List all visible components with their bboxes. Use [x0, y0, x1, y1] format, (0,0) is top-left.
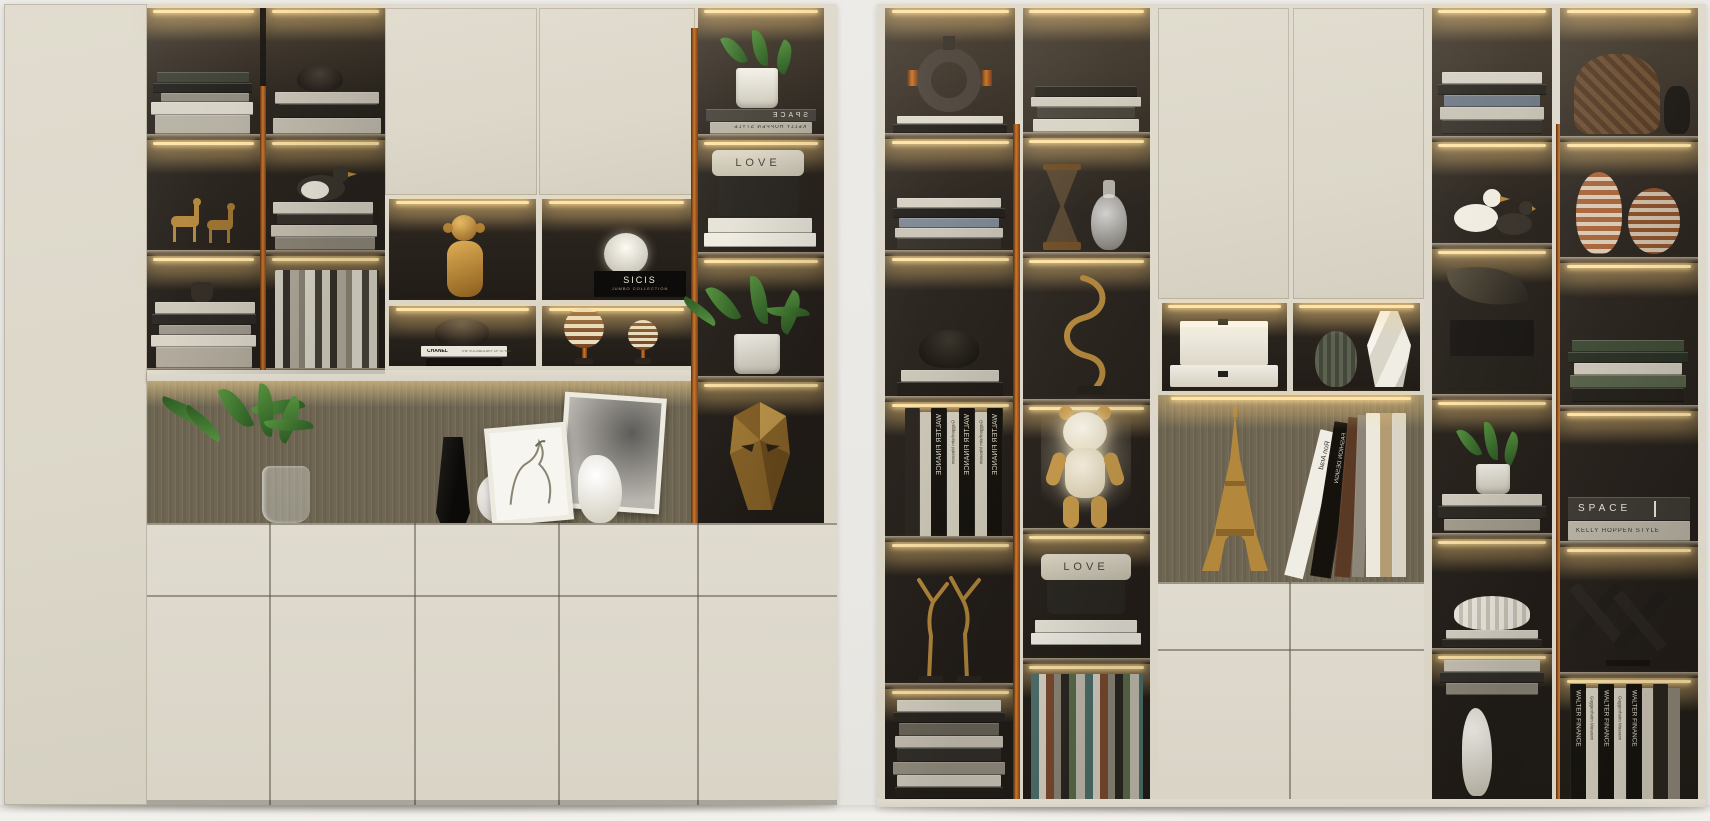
dark-bowl	[435, 318, 489, 346]
striped-gourd-vase	[1628, 188, 1680, 254]
copper-handle	[691, 28, 698, 523]
bird-figurines	[1448, 166, 1536, 242]
walter-finance-books-mirrored: WALTER FINANCE Guggenheim Museum WALTER …	[899, 408, 1003, 536]
black-box	[1450, 320, 1534, 356]
brass-mask-sculpture	[724, 400, 796, 514]
swirl-sculpture	[1053, 272, 1119, 398]
fluted-bowl	[1454, 596, 1530, 630]
display-grid: SICIS JUMBO COLLECTION CHANEL THE VOCABU…	[385, 195, 695, 370]
copper-handle	[1013, 124, 1020, 799]
olive-pleated-vase	[1315, 331, 1357, 387]
dark-bowl	[297, 66, 343, 92]
glass-column-right: SPACE KELLY HOPPEN STYLE LOVE	[691, 4, 837, 523]
horse-sketch-frame	[484, 422, 574, 527]
candle-sphere	[564, 308, 604, 348]
center-niche: Ron Arad FASHION DESIGN	[1158, 395, 1424, 582]
top-door-right	[1293, 8, 1424, 299]
dark-bowl	[919, 330, 979, 368]
ring-sculpture	[917, 48, 981, 112]
space-book: SPACE	[1568, 497, 1690, 521]
niche	[147, 381, 695, 523]
glass-decanter	[1091, 194, 1127, 250]
pumpkin-lamp	[604, 233, 648, 275]
grid-cell-chanel: CHANEL THE VOCABULARY OF STYLE	[389, 306, 536, 366]
plant-pot	[736, 68, 778, 108]
cell-boxes	[1162, 303, 1287, 391]
grid-cell-candles	[542, 306, 691, 366]
cross-sculpture	[1582, 568, 1678, 672]
top-door-left	[1158, 8, 1289, 299]
dark-jar	[1664, 86, 1690, 134]
wicker-basket	[1574, 54, 1660, 134]
grid-cell-monkey	[389, 199, 536, 300]
love-box: LOVE	[712, 150, 804, 216]
chanel-title: CHANEL	[427, 349, 448, 354]
display-cells	[1158, 299, 1424, 395]
striped-gourd-vase	[1576, 172, 1622, 254]
glass-column-left	[147, 8, 385, 374]
space-book-stack-mirrored: SPACE KELLY HOPPEN STYLE	[706, 109, 816, 134]
vertical-books	[1031, 674, 1143, 799]
kelly-hoppen-book: KELLY HOPPEN STYLE	[1568, 521, 1690, 541]
vertical-books	[275, 270, 379, 368]
dark-small-vase	[1500, 748, 1524, 796]
dancer-figurines	[905, 564, 993, 684]
love-box: LOVE	[1041, 554, 1131, 618]
hourglass	[1043, 164, 1081, 250]
white-box	[1180, 321, 1268, 365]
black-vase	[436, 437, 470, 523]
glass-column-1: WALTER FINANCE Guggenheim Museum WALTER …	[885, 8, 1015, 799]
glass-vase	[262, 466, 310, 523]
top-door-left	[385, 8, 537, 195]
bird-figurine	[287, 158, 359, 204]
plant-pot	[734, 334, 780, 374]
base-cabinets	[147, 523, 837, 805]
plant-leaves	[1462, 418, 1522, 466]
chanel-subtitle: THE VOCABULARY OF STYLE	[461, 350, 511, 354]
bear-lamp	[1041, 408, 1131, 530]
jumbo-label: JUMBO COLLECTION	[594, 287, 686, 291]
center-base	[1158, 582, 1424, 799]
grid-cell-sicis: SICIS JUMBO COLLECTION	[542, 199, 691, 300]
right-cabinet: WALTER FINANCE Guggenheim Museum WALTER …	[877, 4, 1706, 807]
black-box	[1446, 356, 1538, 390]
white-tall-vase	[1462, 708, 1492, 796]
walter-finance-books: WALTER FINANCE Guggenheim Museum WALTER …	[1570, 684, 1690, 799]
left-cabinet: SICIS JUMBO COLLECTION CHANEL THE VOCABU…	[4, 4, 837, 805]
glass-column-2: LOVE	[1023, 8, 1150, 799]
leaning-books: Ron Arad FASHION DESIGN	[1278, 395, 1424, 582]
plant-pot	[1476, 464, 1510, 494]
center-section: Ron Arad FASHION DESIGN	[1158, 8, 1424, 799]
plant-leaves	[712, 268, 808, 334]
chanel-book: CHANEL THE VOCABULARY OF STYLE	[421, 346, 507, 357]
copper-handle	[260, 86, 266, 374]
sicis-box: SICIS JUMBO COLLECTION	[594, 271, 686, 297]
sicis-label: SICIS	[594, 276, 686, 285]
top-door-right	[539, 8, 695, 195]
small-jar	[191, 282, 213, 302]
book-stack	[157, 72, 249, 83]
left-wardrobe-door	[4, 4, 147, 805]
glass-column-3	[1432, 8, 1552, 799]
deer-figurines	[163, 194, 247, 250]
white-faceted-vase	[1367, 311, 1411, 387]
cell-vases	[1293, 303, 1420, 391]
eiffel-tower-model	[1196, 407, 1274, 579]
scene: SICIS JUMBO COLLECTION CHANEL THE VOCABU…	[0, 0, 1710, 821]
monkey-figurine	[451, 215, 477, 241]
candle-sphere-small	[628, 320, 658, 350]
plant-leaves	[718, 24, 802, 72]
glass-column-4: SPACE KELLY HOPPEN STYLE WALTER FINANCE …	[1560, 8, 1698, 799]
plant-leaves	[196, 377, 336, 473]
